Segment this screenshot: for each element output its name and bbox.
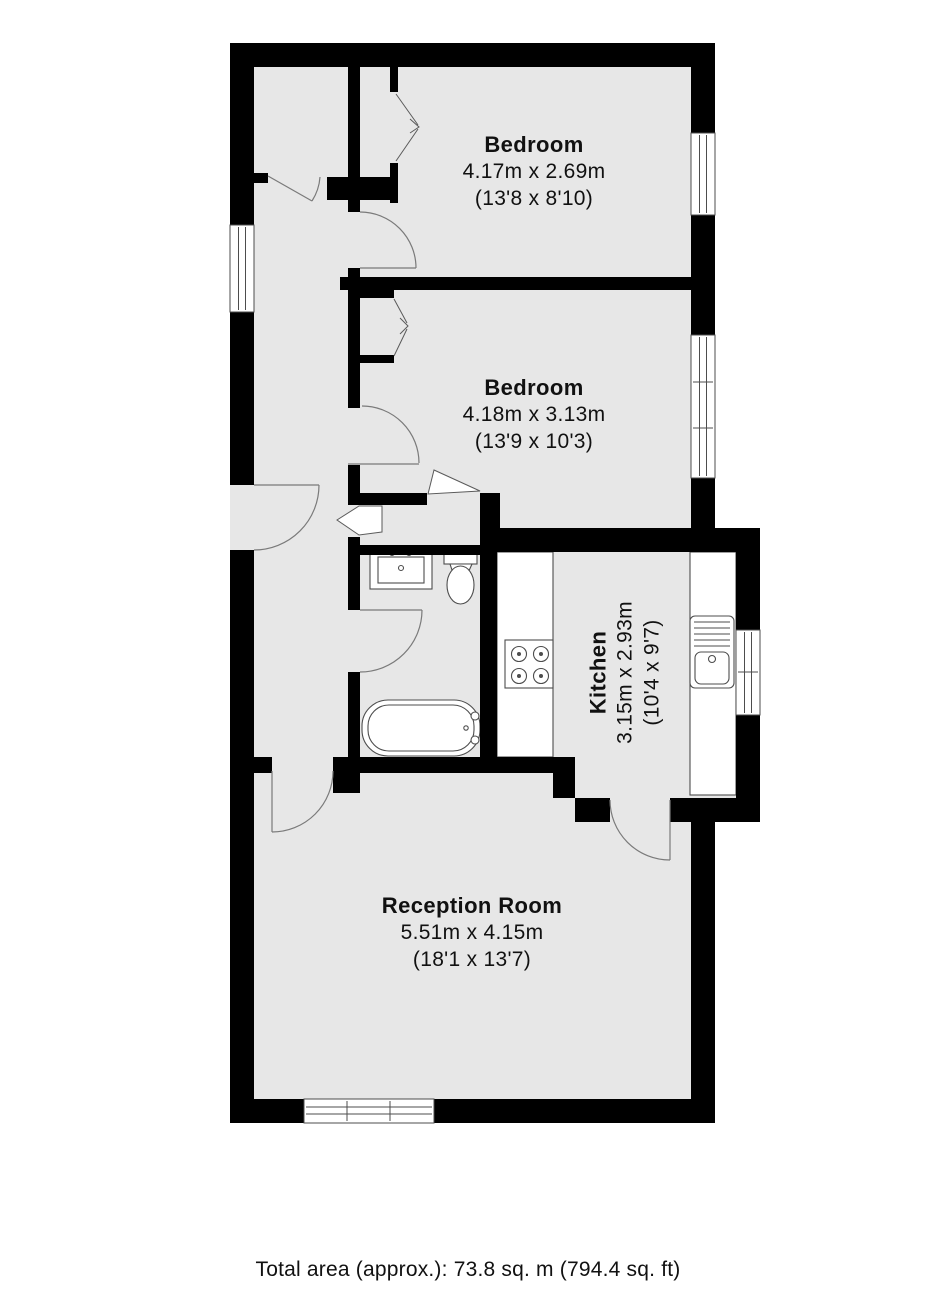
wall-exterior-right-mid: [691, 215, 715, 335]
floorplan-page: Bedroom 4.17m x 2.69m (13'8 x 8'10) Bedr…: [0, 0, 940, 1301]
kitchen-label: Kitchen 3.15m x 2.93m (10'4 x 9'7): [585, 543, 666, 803]
window-reception-bottom: [304, 1099, 434, 1123]
reception-dims-metric: 5.51m x 4.15m: [342, 919, 602, 946]
wall-kitchen-right-upper: [736, 528, 760, 630]
wall-kitchen-step: [553, 773, 575, 798]
hob-icon: [505, 640, 553, 688]
wall-exterior-top: [230, 43, 715, 67]
bedroom2-dims-imperial: (13'9 x 10'3): [404, 428, 664, 455]
wall-exterior-left-lower: [230, 550, 254, 1123]
wall-bathroom-top: [360, 545, 480, 555]
wall-vestibule-block: [327, 177, 393, 200]
bedroom1-dims-imperial: (13'8 x 8'10): [404, 185, 664, 212]
wall-bathroom-bottom: [348, 757, 575, 773]
wall-reception-right: [691, 798, 715, 1123]
wall-exterior-left-mid: [230, 312, 254, 485]
reception-dims-imperial: (18'1 x 13'7): [342, 946, 602, 973]
reception-name: Reception Room: [342, 892, 602, 919]
window-kitchen-right: [736, 630, 760, 715]
bedroom1-dims-metric: 4.17m x 2.69m: [404, 158, 664, 185]
wall-innerhall-top: [348, 493, 427, 505]
bedroom2-dims-metric: 4.18m x 3.13m: [404, 401, 664, 428]
kitchen-dims-imperial: (10'4 x 9'7): [639, 543, 666, 803]
kitchen-name: Kitchen: [585, 543, 612, 803]
bedroom1-name: Bedroom: [404, 131, 664, 158]
bedroom1-label: Bedroom 4.17m x 2.69m (13'8 x 8'10): [404, 131, 664, 212]
bedroom2-name: Bedroom: [404, 374, 664, 401]
kitchen-sink-icon: [690, 616, 734, 688]
bathtub-icon: [362, 700, 480, 756]
wall-exterior-left-upper: [230, 43, 254, 225]
bedroom2-label: Bedroom 4.18m x 3.13m (13'9 x 10'3): [404, 374, 664, 455]
window-hall-left: [230, 225, 254, 312]
wall-vestibule-stub: [254, 173, 268, 183]
window-bedroom1-right: [691, 133, 715, 215]
reception-label: Reception Room 5.51m x 4.15m (18'1 x 13'…: [342, 892, 602, 973]
kitchen-dims-metric: 3.15m x 2.93m: [612, 543, 639, 803]
window-bedroom2-right: [691, 335, 715, 478]
toilet-icon: [444, 549, 477, 604]
wall-bathroom-right: [480, 552, 497, 757]
wall-exterior-bottom: [230, 1099, 715, 1123]
total-area-label: Total area (approx.): 73.8 sq. m (794.4 …: [168, 1258, 768, 1282]
wall-exterior-right-upper: [691, 43, 715, 133]
wall-bedroom-divider: [340, 277, 715, 290]
